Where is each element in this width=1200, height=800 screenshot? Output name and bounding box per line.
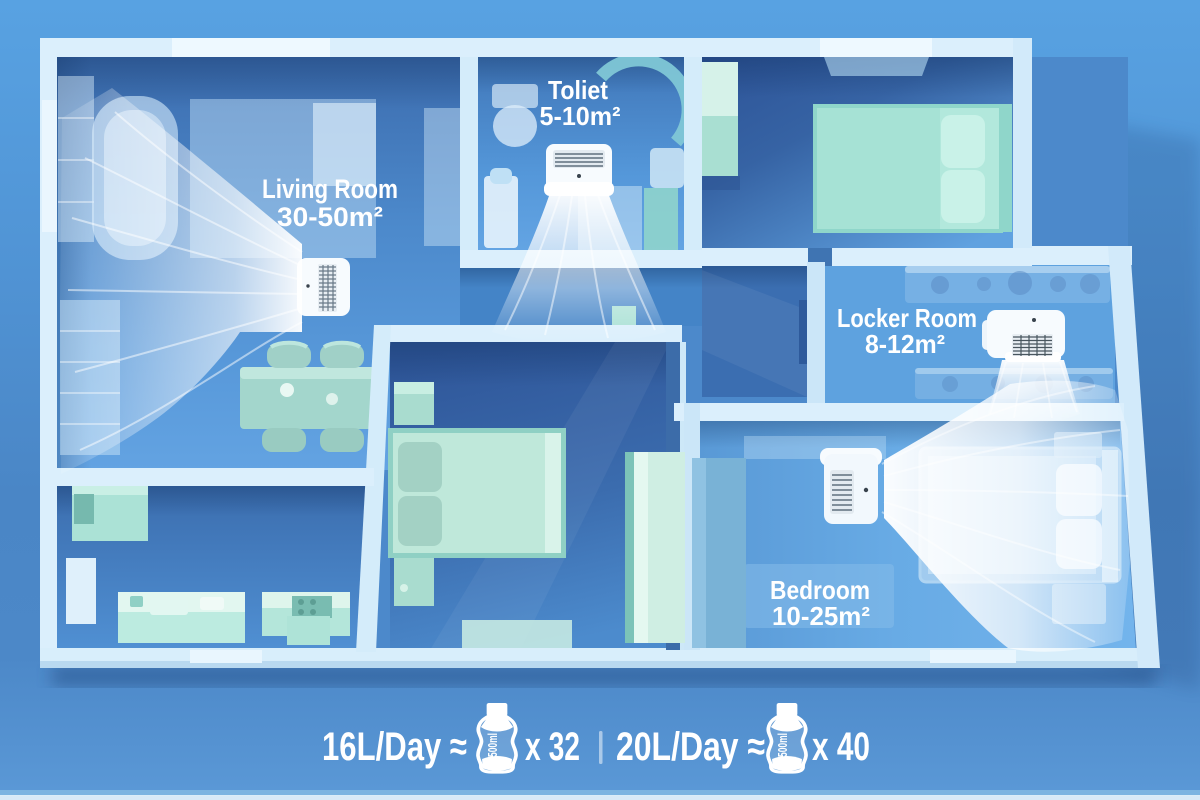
svg-text:500ml: 500ml (485, 733, 500, 757)
svg-text:x 40: x 40 (812, 725, 870, 769)
svg-text:10-25m²: 10-25m² (772, 601, 870, 631)
svg-text:5-10m²: 5-10m² (540, 101, 621, 131)
svg-text:x 32: x 32 (525, 725, 580, 769)
svg-text:20L/Day ≈: 20L/Day ≈ (616, 725, 765, 769)
svg-text:500ml: 500ml (775, 733, 790, 757)
svg-text:30-50m²: 30-50m² (277, 202, 383, 232)
svg-text:8-12m²: 8-12m² (865, 329, 945, 359)
svg-text:16L/Day ≈: 16L/Day ≈ (322, 725, 467, 769)
svg-text:Living Room: Living Room (262, 174, 398, 204)
